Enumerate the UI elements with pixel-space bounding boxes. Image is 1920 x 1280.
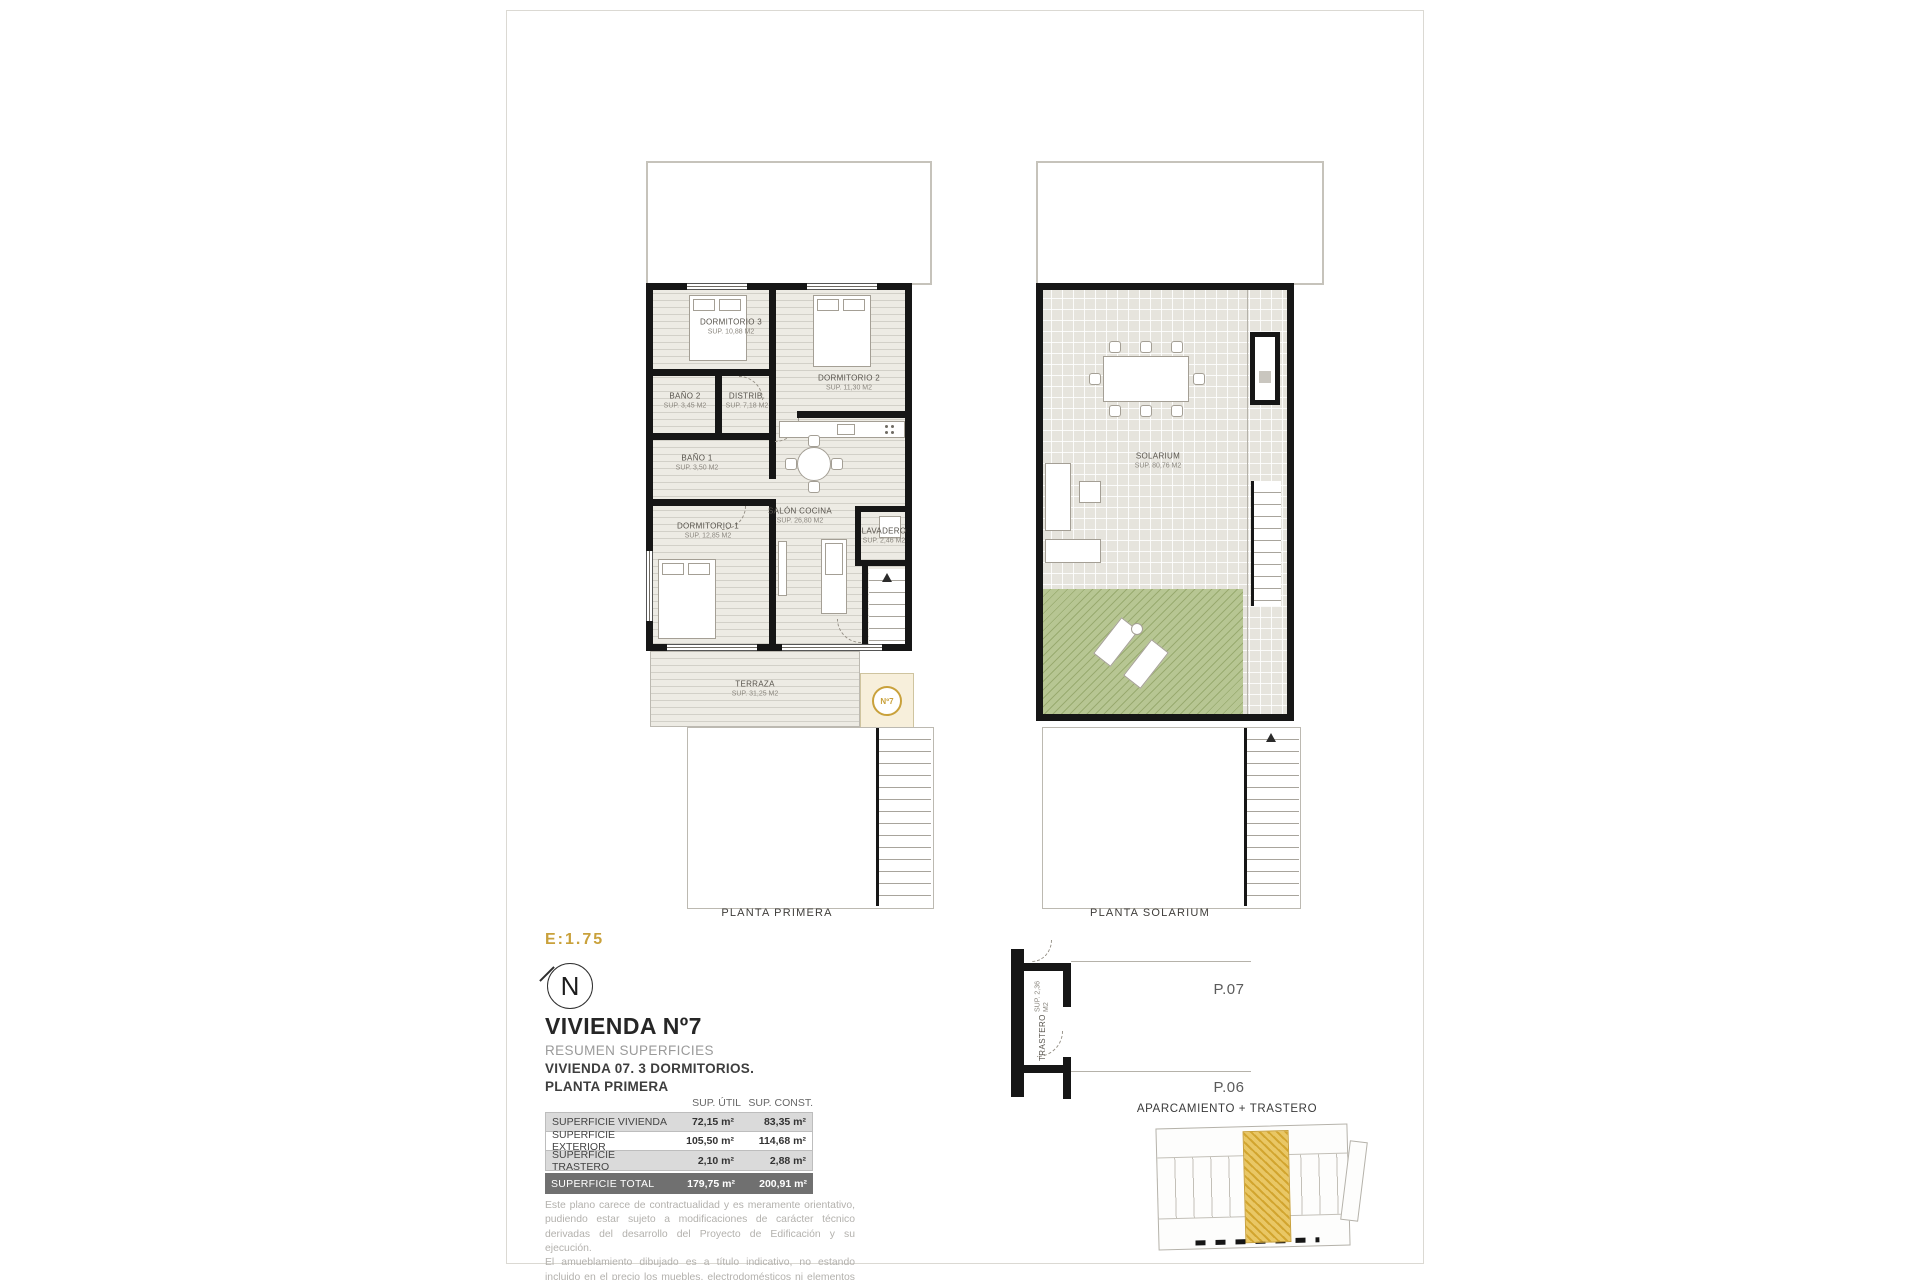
room-label-distribuidor: DISTRIB. SUP. 7,18 M2 [726,391,769,410]
hob-burners [885,425,888,428]
solarium-roof-outline [1036,161,1324,285]
room-label-bano-2: BAÑO 2 SUP. 3,45 M2 [664,391,707,410]
row-label: SUPERFICIE TRASTERO [546,1149,668,1173]
col-header-sup-util: SUP. ÚTIL [675,1097,741,1109]
corridor-divider [1247,290,1248,714]
title-floor: PLANTA PRIMERA [545,1079,668,1094]
chair [808,481,820,493]
room-name: SALÓN COCINA [768,506,832,516]
row-util-value: 72,15 m² [668,1116,740,1128]
interior-stairs [1251,481,1281,606]
room-label-dormitorio-2: DORMITORIO 2 SUP. 11,30 M2 [818,373,880,392]
wall-segment [797,411,912,418]
room-name: DISTRIB. [729,391,765,401]
north-arrow: N [547,963,593,1009]
room-name: BAÑO 2 [669,391,700,401]
primera-roof-outline [646,161,932,285]
wall-segment [1036,283,1294,290]
table-total-row: SUPERFICIE TOTAL 179,75 m² 200,91 m² [545,1173,813,1194]
room-area: SUP. 7,18 M2 [726,402,769,411]
title-subtitle: RESUMEN SUPERFICIES [545,1043,714,1058]
trastero-label: TRASTERO SUP. 2,36 M2 [1025,975,1061,1061]
north-letter: N [561,971,580,1002]
room-label-terraza: TERRAZA SUP. 31,25 M2 [732,679,779,698]
chair [1109,405,1121,417]
tv-unit [778,541,787,596]
title-description: VIVIENDA 07. 3 DORMITORIOS. [545,1061,754,1076]
room-label-solarium: SOLARIUM SUP. 80,76 M2 [1135,451,1182,470]
row-util-value: 105,50 m² [668,1135,740,1147]
wall-segment [1063,1057,1071,1099]
entry-porch: Nº7 [860,673,914,729]
exterior-stairs [1244,728,1299,906]
room-name: TERRAZA [735,679,774,689]
chair [1171,405,1183,417]
room-label-salon-cocina: SALÓN COCINA SUP. 26,80 M2 [768,506,832,525]
stairs-arrow-icon [1266,733,1276,742]
parking-divider [1071,961,1251,962]
window [667,644,757,651]
chair [1089,373,1101,385]
room-name: DORMITORIO 2 [818,373,880,383]
outdoor-sofa [1045,539,1101,563]
solarium-dining-table [1103,356,1189,402]
room-name: TRASTERO [1038,1014,1048,1061]
total-const-value: 200,91 m² [741,1178,813,1190]
chair [831,458,843,470]
room-name: DORMITORIO 1 [677,521,739,531]
wall-segment [1011,949,1024,1097]
unit-number-badge: Nº7 [872,686,902,716]
wall-segment [1036,283,1043,721]
outdoor-table [1079,481,1101,503]
shaft-inner [1259,371,1271,383]
exterior-stairs [876,728,931,906]
wall-segment [769,283,776,479]
col-header-sup-const: SUP. CONST. [741,1097,813,1109]
page-canvas: Nº7 DORMITORIO 3 SUP. 10,88 M2 DORMITORI… [0,0,1920,1280]
outdoor-sofa [1045,463,1071,531]
room-label-lavadero: LAVADERO SUP. 2,46 M2 [862,526,907,545]
dining-table [797,447,831,481]
wall-segment [653,433,769,440]
room-area: SUP. 2,36 M2 [1035,975,1052,1012]
window [687,283,747,290]
room-name: LAVADERO [862,526,907,536]
total-label: SUPERFICIE TOTAL [545,1178,669,1190]
table-header-row: SUP. ÚTIL SUP. CONST. [545,1097,813,1112]
wall-segment [1287,283,1294,721]
row-util-value: 2,10 m² [668,1155,740,1167]
wall-segment [855,506,912,512]
highlighted-unit-band [1243,1130,1292,1243]
chair [1140,405,1152,417]
room-area: SUP. 3,50 M2 [676,464,719,473]
row-const-value: 2,88 m² [740,1155,812,1167]
row-label: SUPERFICIE VIVIENDA [546,1116,668,1128]
caption-aparcamiento-trastero: APARCAMIENTO + TRASTERO [1107,1103,1347,1115]
room-area: SUP. 12,85 M2 [685,532,732,541]
table-body: SUPERFICIE VIVIENDA 72,15 m² 83,35 m² SU… [545,1112,813,1171]
chair [785,458,797,470]
wall-segment [653,499,769,506]
wall-segment [1011,963,1071,971]
window [782,644,882,651]
room-name: BAÑO 1 [681,453,712,463]
mini-site-plan [1155,1124,1350,1251]
plot-label-p06: P.06 [1194,1079,1264,1096]
wall-segment [862,566,868,646]
table-row: SUPERFICIE TRASTERO 2,10 m² 2,88 m² [546,1151,812,1170]
door-arc [1032,940,1052,962]
window [646,551,653,621]
wall-segment [653,369,773,376]
room-label-dormitorio-1: DORMITORIO 1 SUP. 12,85 M2 [677,521,739,540]
disclaimer-paragraph: El amueblamiento dibujado es a título in… [545,1256,855,1280]
disclaimer-text: Este plano carece de contractualidad y e… [545,1199,855,1280]
stairs-arrow-icon [882,573,892,582]
wall-segment [1036,714,1294,721]
parking-divider [1071,1071,1251,1072]
room-area: SUP. 26,80 M2 [777,517,824,526]
caption-planta-solarium: PLANTA SOLARIUM [1040,907,1260,919]
bed-pillow [688,563,710,575]
page-title: VIVIENDA Nº7 [545,1013,702,1040]
chair [1140,341,1152,353]
row-const-value: 114,68 m² [740,1135,812,1147]
plan-sheet: Nº7 DORMITORIO 3 SUP. 10,88 M2 DORMITORI… [506,10,1424,1264]
chair [1171,341,1183,353]
surfaces-table: SUP. ÚTIL SUP. CONST. SUPERFICIE VIVIEND… [545,1097,813,1171]
disclaimer-paragraph: Este plano carece de contractualidad y e… [545,1199,855,1256]
room-label-bano-1: BAÑO 1 SUP. 3,50 M2 [676,453,719,472]
window [807,283,877,290]
bed-pillow [817,299,839,311]
kitchen-sink [837,424,855,435]
room-area: SUP. 80,76 M2 [1135,462,1182,471]
wall-segment [855,506,861,566]
room-name: SOLARIUM [1136,451,1180,461]
room-area: SUP. 10,88 M2 [708,328,755,337]
caption-planta-primera: PLANTA PRIMERA [667,907,887,919]
sofa-cushion [825,543,843,575]
bed-pillow [843,299,865,311]
wall-segment [905,283,912,651]
plot-label-p07: P.07 [1194,981,1264,998]
room-area: SUP. 31,25 M2 [732,690,779,699]
chair [808,435,820,447]
bed-pillow [662,563,684,575]
wall-segment [715,376,722,436]
solarium-shaft [1250,332,1280,405]
wall-segment [1011,1065,1071,1073]
room-label-dormitorio-3: DORMITORIO 3 SUP. 10,88 M2 [700,317,762,336]
room-name: DORMITORIO 3 [700,317,762,327]
bed-pillow [693,299,715,311]
bed-pillow [719,299,741,311]
scale-label: E:1.75 [545,931,604,949]
room-area: SUP. 11,30 M2 [826,384,872,393]
chair [1109,341,1121,353]
total-util-value: 179,75 m² [669,1178,741,1190]
room-area: SUP. 3,45 M2 [664,402,707,411]
chair [1193,373,1205,385]
row-const-value: 83,35 m² [740,1116,812,1128]
room-area: SUP. 2,46 M2 [863,537,906,546]
lounger-side-table [1131,623,1143,635]
